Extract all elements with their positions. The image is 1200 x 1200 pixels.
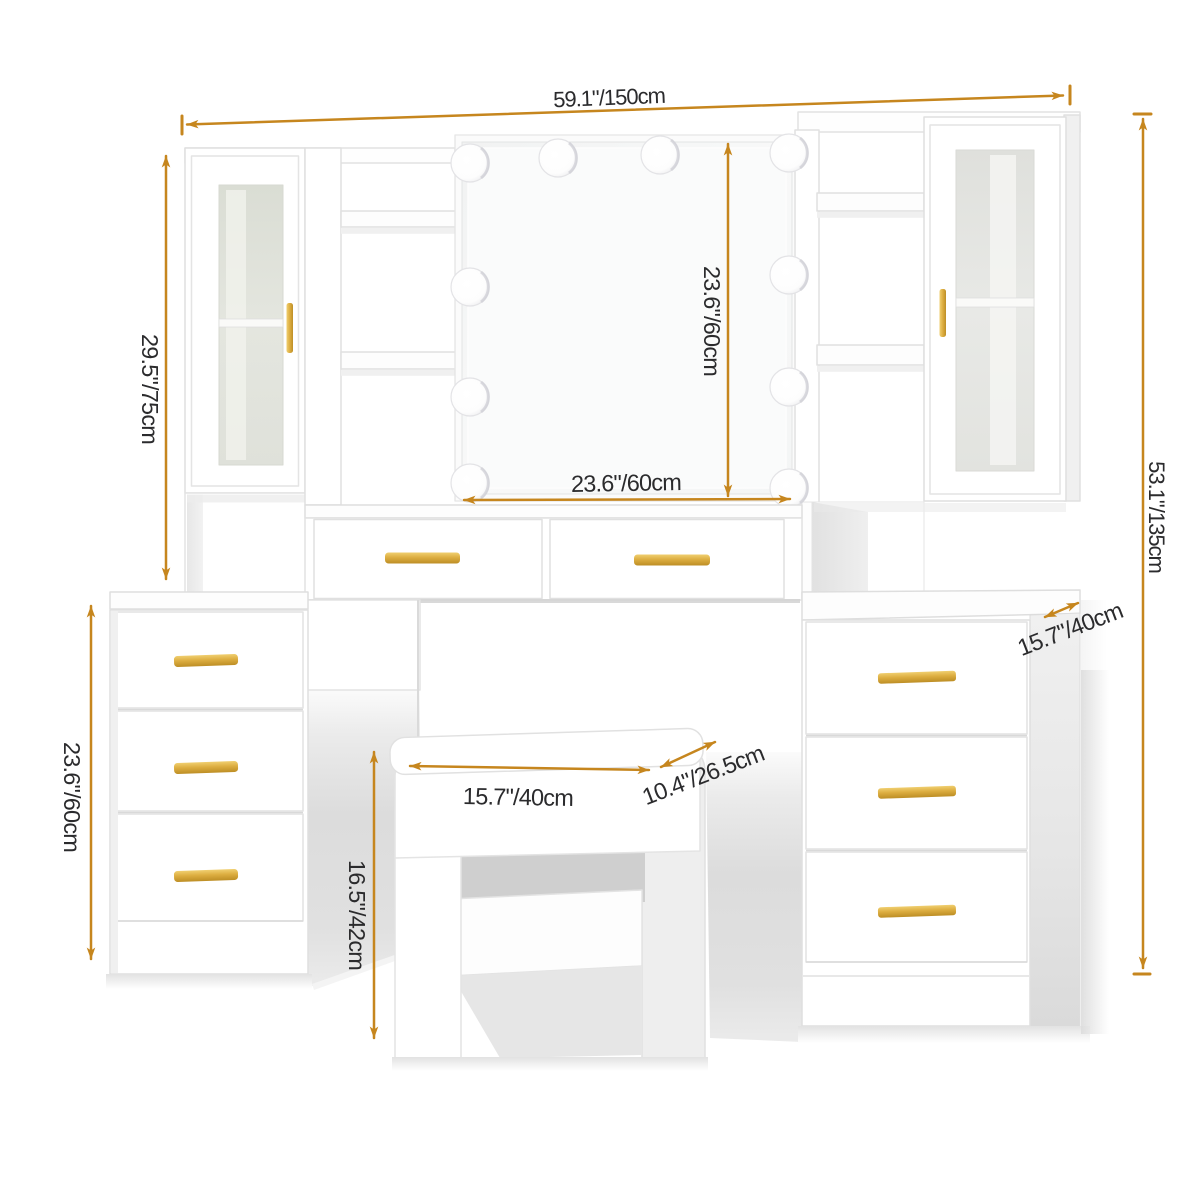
svg-text:23.6"/60cm: 23.6"/60cm: [59, 742, 85, 852]
svg-text:53.1"/135cm: 53.1"/135cm: [1144, 461, 1169, 573]
svg-text:16.5"/42cm: 16.5"/42cm: [344, 860, 370, 970]
svg-text:23.6"/60cm: 23.6"/60cm: [699, 266, 725, 376]
svg-text:23.6"/60cm: 23.6"/60cm: [571, 469, 682, 497]
svg-text:15.7"/40cm: 15.7"/40cm: [463, 783, 574, 811]
svg-text:29.5"/75cm: 29.5"/75cm: [137, 334, 163, 444]
svg-text:59.1"/150cm: 59.1"/150cm: [553, 83, 666, 112]
